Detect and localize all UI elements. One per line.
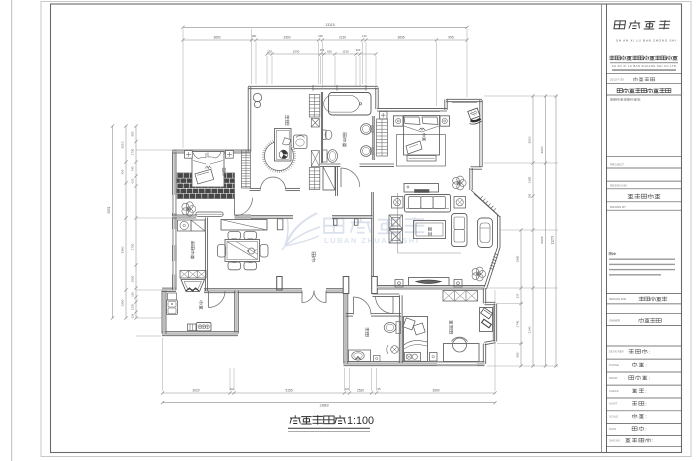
svg-text:DATE: DATE: [609, 427, 616, 431]
svg-text:110: 110: [362, 34, 367, 38]
svg-text:13115: 13115: [325, 23, 334, 27]
svg-text::: :: [645, 363, 646, 368]
svg-text:5905: 5905: [540, 236, 544, 243]
svg-text:3210: 3210: [121, 141, 125, 148]
svg-text:3020: 3020: [192, 388, 199, 392]
svg-text:1720: 1720: [131, 243, 135, 250]
svg-text:CHECK: CHECK: [609, 389, 619, 393]
svg-text:SH AN XI LU BAN ZHUANG SHI CO: SH AN XI LU BAN ZHUANG SHI CO LTD: [612, 64, 677, 68]
svg-text:195: 195: [318, 34, 323, 38]
svg-text:SH AN XI LU BAN ZHONG SHI: SH AN XI LU BAN ZHONG SHI: [616, 39, 677, 43]
svg-text:3600: 3600: [540, 146, 544, 153]
svg-text:190: 190: [528, 193, 532, 198]
svg-text:2130: 2130: [339, 35, 346, 39]
svg-text:AUDIT: AUDIT: [609, 402, 618, 406]
svg-text:255: 255: [267, 49, 272, 53]
svg-text:SCALE: SCALE: [609, 414, 618, 418]
svg-text:2520: 2520: [357, 388, 364, 392]
svg-text:13863: 13863: [319, 404, 328, 408]
svg-text:5155: 5155: [285, 388, 292, 392]
svg-text:PROJECT: PROJECT: [610, 162, 624, 166]
svg-text:2530: 2530: [293, 49, 300, 53]
svg-text:2140: 2140: [528, 326, 532, 333]
svg-text:130: 130: [131, 292, 135, 297]
svg-text:DRAW: DRAW: [609, 376, 618, 380]
svg-text:1990: 1990: [121, 299, 125, 306]
svg-text:2013-7-30: 2013-7-30: [610, 77, 624, 81]
svg-text:11279: 11279: [551, 235, 555, 244]
svg-text:420: 420: [121, 169, 125, 174]
svg-text:3695: 3695: [397, 35, 404, 39]
svg-text:1220: 1220: [131, 303, 135, 310]
svg-text:110: 110: [345, 387, 350, 391]
svg-text::: :: [649, 349, 650, 354]
svg-text:900: 900: [516, 352, 520, 357]
svg-text:3990: 3990: [432, 388, 439, 392]
svg-text:DWGNO: DWGNO: [609, 438, 621, 442]
svg-text:620: 620: [131, 178, 135, 183]
svg-text:1820: 1820: [131, 275, 135, 282]
svg-text:DRAWN BY: DRAWN BY: [610, 205, 626, 209]
svg-text::: :: [645, 389, 646, 394]
svg-text:3300: 3300: [283, 35, 290, 39]
svg-text:1130: 1130: [342, 49, 349, 53]
svg-text:740: 740: [131, 166, 135, 171]
svg-text:335: 335: [131, 313, 135, 318]
svg-text:9051: 9051: [107, 206, 111, 213]
svg-text:2500: 2500: [528, 136, 532, 143]
svg-text:320: 320: [516, 293, 520, 298]
svg-text:1300: 1300: [528, 176, 532, 183]
svg-text:95: 95: [377, 387, 381, 391]
svg-text:1740: 1740: [516, 320, 520, 327]
svg-text:180: 180: [251, 34, 256, 38]
svg-text::: :: [645, 401, 646, 406]
svg-text:1:100: 1:100: [347, 415, 374, 427]
svg-text:200: 200: [356, 48, 361, 52]
svg-text:1730: 1730: [131, 148, 135, 155]
svg-text:1890: 1890: [516, 255, 520, 262]
svg-text::: :: [645, 427, 646, 432]
svg-text::: :: [652, 438, 653, 443]
svg-text:DESIGNER: DESIGNER: [609, 350, 624, 354]
svg-text:DESIGN DIR: DESIGN DIR: [609, 297, 626, 301]
svg-text:115: 115: [320, 48, 325, 52]
svg-text::: :: [645, 414, 646, 419]
svg-text:620: 620: [327, 49, 332, 53]
svg-text:OWNER: OWNER: [609, 319, 620, 323]
svg-text:PHONE: PHONE: [609, 363, 619, 367]
svg-text:DESIGN NO: DESIGN NO: [610, 184, 628, 188]
svg-text:900: 900: [131, 131, 135, 136]
svg-text:3360: 3360: [121, 246, 125, 253]
svg-text:3600: 3600: [213, 35, 220, 39]
svg-text::: :: [649, 376, 650, 381]
svg-text:995: 995: [448, 35, 454, 39]
